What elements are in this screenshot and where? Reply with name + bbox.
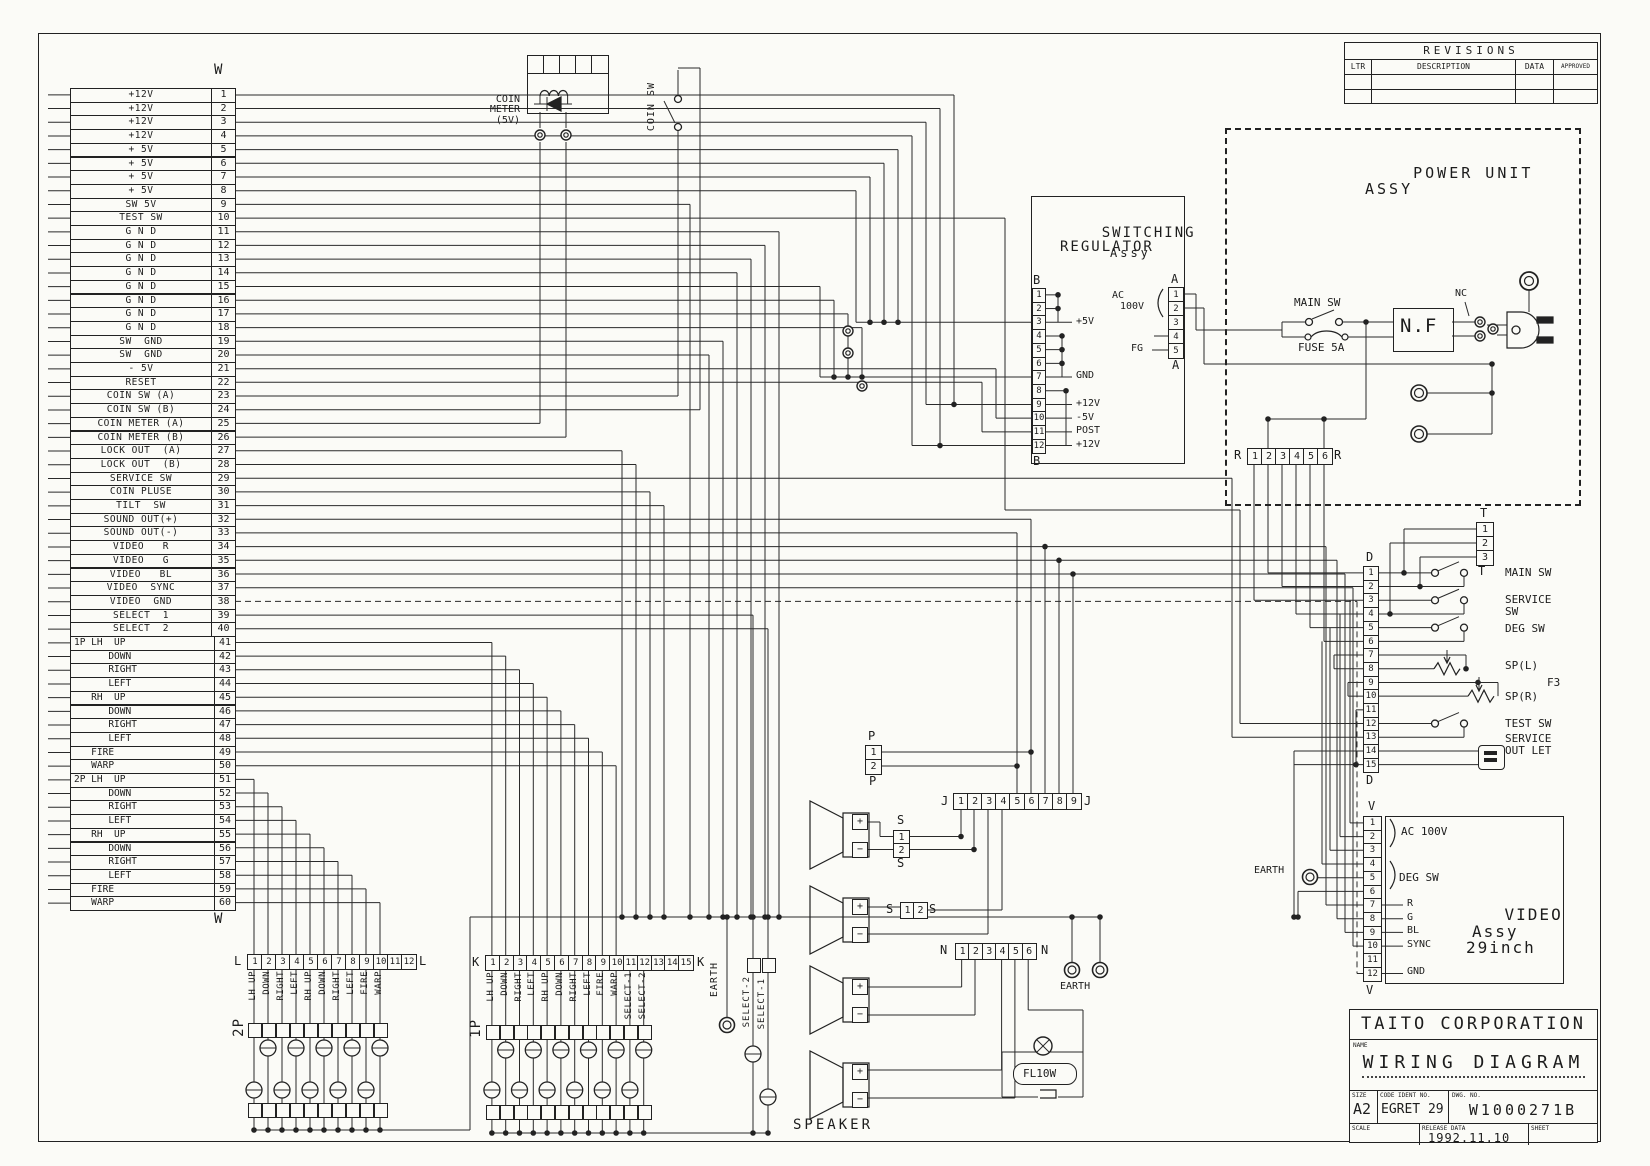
w-row-label: G N D [71, 308, 212, 321]
w-row-58: LEFT58 [70, 869, 236, 884]
r-letter-right: R [1334, 449, 1341, 462]
l-pin-label: RIGHT [332, 971, 342, 1001]
a-connector-pin-5: 5 [1168, 343, 1184, 359]
w-row-label: COIN SW (B) [71, 404, 212, 417]
power-unit-title: POWER UNITASSY [1365, 150, 1533, 213]
w-row-pin: 21 [212, 363, 235, 376]
w-row-label: +12V [71, 103, 212, 116]
w-row-18: G N D18 [70, 321, 236, 336]
sr-fg-label: FG [1131, 344, 1143, 355]
speaker-terminal: − [852, 1092, 868, 1108]
w-row-label: FIRE [71, 747, 215, 760]
k-pin-label: RH UP [541, 972, 551, 1002]
w-row-20: SW GND20 [70, 348, 236, 363]
w-row-label: DOWN [71, 651, 215, 664]
w-row-label: COIN METER (A) [71, 418, 212, 431]
w-row-pin: 47 [215, 719, 235, 732]
w-letter-bottom: W [214, 912, 222, 927]
w-row-pin: 39 [212, 610, 235, 623]
connector-block [541, 1025, 555, 1040]
w-row-label: RIGHT [71, 719, 215, 732]
group-2p-label: 2P [231, 1018, 247, 1037]
name-label: NAME [1353, 1042, 1367, 1049]
coin-meter-label: COINMETER(5V) [468, 84, 520, 137]
w-row-pin: 15 [212, 281, 235, 294]
w-row-1: +12V1 [70, 88, 236, 103]
w-row-pin: 59 [215, 884, 235, 897]
w-row-60: WARP60 [70, 896, 236, 911]
w-row-pin: 12 [212, 240, 235, 253]
w-row-pin: 18 [212, 322, 235, 335]
w-row-label: WARP [71, 897, 215, 910]
w-row-19: SW GND19 [70, 335, 236, 350]
w-row-44: LEFT44 [70, 677, 236, 692]
w-row-label: SELECT 1 [71, 610, 212, 623]
w-row-pin: 46 [215, 706, 235, 719]
w-row-label: SELECT 2 [71, 623, 212, 636]
w-row-label: VIDEO BL [71, 569, 212, 582]
s-v-letter-bottom: S [897, 857, 904, 870]
w-row-pin: 53 [215, 801, 235, 814]
w-row-54: LEFT54 [70, 814, 236, 829]
code-ident-value: EGRET 29 [1381, 1102, 1444, 1117]
n-letter-left: N [940, 944, 947, 957]
w-row-label: TILT SW [71, 500, 212, 513]
w-row-6: + 5V6 [70, 157, 236, 172]
w-row-pin: 26 [212, 432, 235, 445]
k-pin-label: SELECT-1 [624, 972, 634, 1019]
w-row-57: RIGHT57 [70, 855, 236, 870]
w-row-label: 2P LH UP [71, 774, 215, 787]
w-row-label: G N D [71, 281, 212, 294]
speaker-terminal: − [852, 842, 868, 858]
service-outlet [1478, 745, 1505, 770]
speaker-label: SPEAKER [793, 1118, 873, 1133]
w-row-pin: 51 [215, 774, 235, 787]
d-letter-top: D [1366, 551, 1373, 564]
w-row-39: SELECT 139 [70, 609, 236, 624]
w-row-label: - 5V [71, 363, 212, 376]
w-row-pin: 36 [212, 569, 235, 582]
w-row-label: RESET [71, 377, 212, 390]
sr-label-post: POST [1076, 426, 1100, 437]
w-row-10: TEST SW10 [70, 211, 236, 226]
w-row-pin: 22 [212, 377, 235, 390]
connector-block [555, 1105, 569, 1120]
w-row-pin: 24 [212, 404, 235, 417]
w-row-pin: 58 [215, 870, 235, 883]
w-row-33: SOUND OUT(-)33 [70, 526, 236, 541]
l-connector-pin-12: 12 [401, 954, 417, 970]
w-row-24: COIN SW (B)24 [70, 403, 236, 418]
w-row-label: SW GND [71, 349, 212, 362]
p-letter-top: P [868, 730, 875, 743]
l-letter-right: L [419, 955, 426, 968]
w-row-48: LEFT48 [70, 732, 236, 747]
w-row-pin: 41 [215, 637, 235, 650]
t-letter-top: T [1480, 507, 1487, 520]
k-pin-label: RIGHT [514, 972, 524, 1002]
connector-block [248, 1103, 262, 1118]
select2-col-label: SELECT-2 [742, 976, 752, 1027]
connector-block [610, 1025, 624, 1040]
sheet-label: SHEET [1531, 1125, 1549, 1132]
j-letter-left: J [941, 795, 948, 808]
w-row-pin: 29 [212, 473, 235, 486]
connector-block [624, 1105, 638, 1120]
w-row-51: 2P LH UP51 [70, 773, 236, 788]
l-pin-label: LH UP [248, 971, 258, 1001]
connector-block [500, 1105, 514, 1120]
w-row-50: WARP50 [70, 759, 236, 774]
w-row-label: RH UP [71, 829, 215, 842]
sr-label-5v: +5V [1076, 317, 1094, 328]
t-connector-pin-3: 3 [1476, 550, 1494, 566]
w-row-27: LOCK OUT (A)27 [70, 444, 236, 459]
w-row-pin: 6 [212, 158, 235, 171]
w-row-12: G N D12 [70, 239, 236, 254]
connector-block [346, 1023, 360, 1038]
w-row-pin: 48 [215, 733, 235, 746]
dwg-no-value: W1000271B [1449, 1101, 1597, 1119]
w-row-pin: 60 [215, 897, 235, 910]
w-row-label: TEST SW [71, 212, 212, 225]
l-pin-label: FIRE [360, 971, 370, 995]
connector-block [248, 1023, 262, 1038]
w-row-label: G N D [71, 240, 212, 253]
d-service-sw-label: SERVICESW [1505, 594, 1551, 617]
w-row-3: +12V3 [70, 115, 236, 130]
k-pin-label: LEFT [583, 972, 593, 996]
sr-label-m5v: -5V [1076, 413, 1094, 424]
w-row-label: LOCK OUT (B) [71, 459, 212, 472]
w-row-label: VIDEO GND [71, 596, 212, 609]
company-name: TAITO CORPORATION [1350, 1010, 1597, 1040]
w-row-label: RH UP [71, 692, 215, 705]
s-connector-h-pin-2: 2 [913, 902, 928, 919]
revisions-header-description: DESCRIPTION [1372, 60, 1516, 74]
w-row-pin: 42 [215, 651, 235, 664]
connector-block [486, 1025, 500, 1040]
v-letter-top: V [1368, 800, 1375, 813]
connector-block [596, 1105, 610, 1120]
w-row-label: RIGHT [71, 664, 215, 677]
w-row-label: COIN METER (B) [71, 432, 212, 445]
w-row-label: DOWN [71, 843, 215, 856]
connector-block [374, 1023, 388, 1038]
l-pin-label: WARP [374, 971, 384, 995]
w-row-pin: 10 [212, 212, 235, 225]
connector-block [304, 1023, 318, 1038]
w-row-31: TILT SW31 [70, 499, 236, 514]
w-row-pin: 19 [212, 336, 235, 349]
w-row-label: LEFT [71, 815, 215, 828]
speaker-terminal: + [852, 899, 868, 915]
connector-block [583, 1025, 597, 1040]
l-pin-label: RH UP [304, 971, 314, 1001]
w-row-13: G N D13 [70, 252, 236, 267]
v-earth-label: EARTH [1254, 866, 1284, 877]
w-row-label: + 5V [71, 185, 212, 198]
w-row-label: COIN SW (A) [71, 390, 212, 403]
w-row-pin: 5 [212, 144, 235, 157]
w-row-pin: 57 [215, 856, 235, 869]
d-sp-l-label: SP(L) [1505, 660, 1538, 672]
sr-ac-label: AC100V [1112, 291, 1144, 312]
w-row-pin: 14 [212, 267, 235, 280]
title-block: TAITO CORPORATION NAME WIRING DIAGRAM SI… [1349, 1009, 1598, 1143]
w-row-pin: 9 [212, 199, 235, 212]
video-assy-label: VIDEOAssy29inch [1458, 890, 1563, 974]
w-row-23: COIN SW (A)23 [70, 389, 236, 404]
scale-label: SCALE [1352, 1125, 1370, 1132]
w-row-49: FIRE49 [70, 746, 236, 761]
k-pin-label: WARP [610, 972, 620, 996]
w-row-pin: 25 [212, 418, 235, 431]
w-row-pin: 27 [212, 445, 235, 458]
connector-block [318, 1023, 332, 1038]
dwg-no-label: DWG. NO. [1452, 1092, 1481, 1099]
d-letter-bottom: D [1366, 774, 1373, 787]
w-row-pin: 38 [212, 596, 235, 609]
w-row-pin: 55 [215, 829, 235, 842]
n-letter-right: N [1041, 944, 1048, 957]
w-row-pin: 35 [212, 555, 235, 568]
nc-label: NC [1455, 289, 1467, 300]
w-row-pin: 23 [212, 390, 235, 403]
k-letter-left: K [472, 956, 479, 969]
connector-block [638, 1105, 652, 1120]
b-letter-top: B [1033, 274, 1040, 287]
w-row-7: + 5V7 [70, 170, 236, 185]
w-row-label: G N D [71, 322, 212, 335]
w-row-label: VIDEO R [71, 541, 212, 554]
j-connector-pin-9: 9 [1066, 793, 1082, 810]
coin-meter-box [527, 72, 609, 114]
connector-block [569, 1025, 583, 1040]
sr-label-12v2: +12V [1076, 440, 1100, 451]
w-row-42: DOWN42 [70, 650, 236, 665]
w-row-label: RIGHT [71, 856, 215, 869]
w-row-label: LOCK OUT (A) [71, 445, 212, 458]
w-row-label: LEFT [71, 733, 215, 746]
sr-label-gnd: GND [1076, 371, 1094, 382]
k-pin-label: SELECT-2 [638, 972, 648, 1019]
s-h-letter-right: S [929, 903, 936, 916]
w-row-11: G N D11 [70, 225, 236, 240]
speaker-terminal: + [852, 979, 868, 995]
connector-block [610, 1105, 624, 1120]
drawing-name: WIRING DIAGRAM [1362, 1052, 1585, 1078]
w-row-pin: 44 [215, 678, 235, 691]
w-row-21: - 5V21 [70, 362, 236, 377]
w-row-label: +12V [71, 116, 212, 129]
connector-block [346, 1103, 360, 1118]
w-row-2: +12V2 [70, 102, 236, 117]
connector-block [290, 1023, 304, 1038]
noise-filter-label: N.F [1400, 317, 1437, 337]
w-row-pin: 11 [212, 226, 235, 239]
switching-regulator-assy: Assy [1110, 247, 1151, 260]
w-row-29: SERVICE SW29 [70, 472, 236, 487]
fuse-label: FUSE 5A [1298, 342, 1344, 354]
w-row-9: SW 5V9 [70, 198, 236, 213]
w-row-25: COIN METER (A)25 [70, 417, 236, 432]
w-row-label: SERVICE SW [71, 473, 212, 486]
d-test-sw-label: TEST SW [1505, 718, 1551, 730]
t-switch-label: T [1478, 565, 1485, 578]
connector-block [569, 1105, 583, 1120]
size-label: SIZE [1352, 1092, 1366, 1099]
w-row-32: SOUND OUT(+)32 [70, 513, 236, 528]
w-row-pin: 52 [215, 788, 235, 801]
connector-block [527, 1025, 541, 1040]
w-row-pin: 3 [212, 116, 235, 129]
release-date: 1992.11.10 [1428, 1131, 1510, 1145]
connector-block [262, 1103, 276, 1118]
revisions-title: REVISIONS [1345, 43, 1597, 60]
w-row-pin: 45 [215, 692, 235, 705]
w-row-pin: 8 [212, 185, 235, 198]
b-letter-bottom: B [1033, 455, 1040, 468]
connector-block [332, 1103, 346, 1118]
w-row-label: VIDEO G [71, 555, 212, 568]
w-row-16: G N D16 [70, 294, 236, 309]
w-row-40: SELECT 240 [70, 622, 236, 637]
connector-block [762, 958, 776, 973]
code-ident-label: CODE IDENT NO. [1380, 1092, 1431, 1099]
j-letter-right: J [1084, 795, 1091, 808]
connector-block [624, 1025, 638, 1040]
w-row-34: VIDEO R34 [70, 540, 236, 555]
w-row-pin: 33 [212, 527, 235, 540]
connector-block [514, 1105, 528, 1120]
k-pin-label: FIRE [596, 972, 606, 996]
l-pin-label: LEFT [290, 971, 300, 995]
w-row-label: + 5V [71, 144, 212, 157]
select1-col-label: SELECT-1 [757, 978, 767, 1029]
r-letter-left: R [1234, 449, 1241, 462]
s-v-letter-top: S [897, 814, 904, 827]
connector-block [360, 1103, 374, 1118]
w-row-pin: 50 [215, 760, 235, 773]
w-row-pin: 1 [212, 89, 235, 102]
l-pin-label: DOWN [262, 971, 272, 995]
p-letter-bottom: P [869, 775, 876, 788]
connector-block [290, 1103, 304, 1118]
main-sw-label: MAIN SW [1294, 297, 1340, 309]
k-connector-pin-15: 15 [678, 955, 694, 971]
connector-block [541, 1105, 555, 1120]
s-h-letter-left: S [886, 903, 893, 916]
w-row-pin: 2 [212, 103, 235, 116]
w-row-label: SOUND OUT(+) [71, 514, 212, 527]
w-row-label: +12V [71, 89, 212, 102]
w-row-28: LOCK OUT (B)28 [70, 458, 236, 473]
w-row-45: RH UP45 [70, 691, 236, 706]
connector-block [747, 958, 761, 973]
connector-block [262, 1023, 276, 1038]
w-row-15: G N D15 [70, 280, 236, 295]
w-row-label: SOUND OUT(-) [71, 527, 212, 540]
w-row-label: 1P LH UP [71, 637, 215, 650]
a-letter-top: A [1171, 273, 1178, 286]
w-letter-top: W [214, 63, 222, 78]
w-row-label: LEFT [71, 870, 215, 883]
connector-block [332, 1023, 346, 1038]
w-row-label: WARP [71, 760, 215, 773]
w-row-5: + 5V5 [70, 143, 236, 158]
d-sp-r-label: SP(R) [1505, 691, 1538, 703]
d-deg-sw-label: DEG SW [1505, 623, 1545, 635]
speaker-terminal: + [852, 814, 868, 830]
l-pin-label: DOWN [318, 971, 328, 995]
revisions-header-data: DATA [1516, 60, 1554, 74]
connector-block [596, 1025, 610, 1040]
d-f3-label: F3 [1547, 677, 1560, 689]
connector-block [318, 1103, 332, 1118]
w-row-30: COIN PLUSE30 [70, 485, 236, 500]
w-row-22: RESET22 [70, 376, 236, 391]
w-row-46: DOWN46 [70, 705, 236, 720]
w-row-35: VIDEO G35 [70, 554, 236, 569]
w-row-37: VIDEO SYNC37 [70, 581, 236, 596]
group-1p-label: 1P [468, 1019, 484, 1038]
sr-label-12v: +12V [1076, 399, 1100, 410]
w-row-4: +12V4 [70, 129, 236, 144]
w-row-52: DOWN52 [70, 787, 236, 802]
k-pin-label: RIGHT [569, 972, 579, 1002]
connector-block [304, 1103, 318, 1118]
k-pin-label: LH UP [486, 972, 496, 1002]
w-row-pin: 16 [212, 295, 235, 308]
w-row-47: RIGHT47 [70, 718, 236, 733]
w-row-pin: 31 [212, 500, 235, 513]
revisions-table: REVISIONS LTR DESCRIPTION DATA APPROVED [1344, 42, 1598, 104]
n-connector-pin-6: 6 [1022, 943, 1037, 960]
w-row-59: FIRE59 [70, 883, 236, 898]
fl-lamp-label: FL10W [1023, 1068, 1056, 1080]
connector-block [486, 1105, 500, 1120]
w-row-pin: 49 [215, 747, 235, 760]
w-row-pin: 34 [212, 541, 235, 554]
speaker-terminal: + [852, 1064, 868, 1080]
coin-meter-conn-pin-5 [591, 55, 609, 74]
k-pin-label: DOWN [500, 972, 510, 996]
w-row-14: G N D14 [70, 266, 236, 281]
earth-n-label: EARTH [1060, 982, 1090, 993]
d-connector-pin-15: 15 [1363, 758, 1379, 774]
w-row-pin: 56 [215, 843, 235, 856]
v-connector-pin-12: 12 [1363, 967, 1382, 983]
w-row-pin: 30 [212, 486, 235, 499]
w-row-label: + 5V [71, 171, 212, 184]
speaker-terminal: − [852, 927, 868, 943]
connector-block [374, 1103, 388, 1118]
w-row-label: G N D [71, 295, 212, 308]
d-outlet-label: SERVICEOUT LET [1505, 733, 1551, 756]
w-row-label: G N D [71, 267, 212, 280]
k-letter-right: K [697, 956, 704, 969]
v-r-label: R [1407, 899, 1413, 910]
connector-block [360, 1023, 374, 1038]
w-row-label: DOWN [71, 788, 215, 801]
connector-block [500, 1025, 514, 1040]
v-gnd-label: GND [1407, 967, 1425, 978]
w-row-label: VIDEO SYNC [71, 582, 212, 595]
revisions-header-approved: APPROVED [1554, 60, 1597, 74]
d-main-sw-label: MAIN SW [1505, 567, 1551, 579]
